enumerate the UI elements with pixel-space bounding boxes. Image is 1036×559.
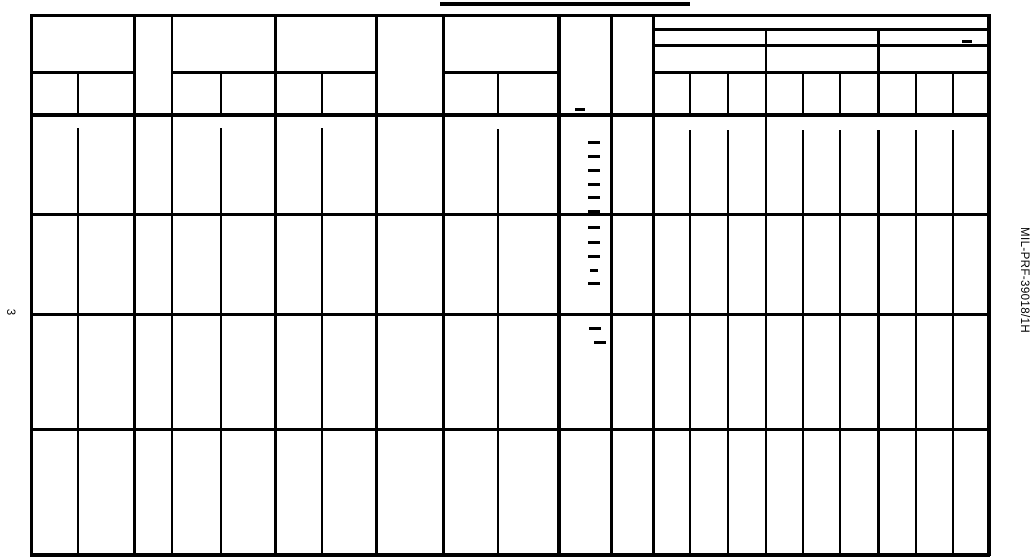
grid-line-v <box>77 71 79 117</box>
grid-line-h <box>30 71 136 74</box>
dash-mark <box>962 40 972 43</box>
grid-line-v <box>915 72 917 117</box>
grid-line-v <box>915 130 917 556</box>
grid-line-v <box>171 14 173 556</box>
dash-mark <box>588 282 600 285</box>
grid-line-v <box>497 71 499 117</box>
grid-line-v <box>689 72 691 117</box>
grid-line-v <box>375 14 378 556</box>
dash-mark <box>588 141 600 144</box>
dash-mark <box>588 169 600 172</box>
grid-line-v <box>220 71 222 117</box>
grid-line-v <box>442 14 445 556</box>
grid-line-v <box>652 14 655 556</box>
grid-line-v <box>987 14 991 556</box>
dash-mark <box>588 210 600 213</box>
dash-mark <box>575 108 585 111</box>
grid-line-h <box>30 113 990 117</box>
dash-mark <box>589 327 601 330</box>
grid-line-v <box>274 14 277 556</box>
grid-line-h <box>30 313 990 316</box>
grid-line-v <box>765 28 767 556</box>
grid-line-h <box>652 28 990 31</box>
grid-line-v <box>321 71 323 117</box>
grid-line-h <box>30 213 990 216</box>
grid-line-v <box>30 14 33 556</box>
grid-line-v <box>877 130 880 556</box>
table-title-underline <box>440 2 690 6</box>
grid-line-h <box>30 14 990 17</box>
dash-mark <box>588 241 600 244</box>
grid-line-h <box>30 553 990 557</box>
dash-mark <box>594 341 606 344</box>
grid-line-v <box>727 72 729 117</box>
dash-mark <box>590 269 598 272</box>
grid-line-v <box>77 128 79 556</box>
grid-line-v <box>220 128 222 556</box>
page-number: 3 <box>0 302 16 322</box>
grid-line-h <box>652 44 990 47</box>
dash-mark <box>588 226 600 229</box>
spec-number-vertical: MIL-PRF-39018/1H <box>1018 227 1030 359</box>
dash-mark <box>588 183 600 186</box>
grid-line-h <box>30 428 990 431</box>
grid-line-v <box>557 14 561 556</box>
grid-line-v <box>133 14 136 556</box>
grid-line-v <box>802 130 804 556</box>
grid-line-v <box>689 130 691 556</box>
grid-line-h <box>442 71 560 74</box>
grid-line-v <box>497 129 499 556</box>
dash-mark <box>588 255 600 258</box>
grid-line-v <box>727 130 729 556</box>
grid-line-v <box>839 130 841 556</box>
grid-line-v <box>952 72 954 117</box>
grid-line-v <box>952 130 954 556</box>
dash-mark <box>588 196 600 199</box>
grid-line-v <box>321 128 323 556</box>
grid-line-v <box>610 14 613 556</box>
grid-line-v <box>839 72 841 117</box>
scanned-table-page: 3 MIL-PRF-39018/1H <box>0 0 1036 559</box>
grid-line-h <box>171 71 378 74</box>
dash-mark <box>588 155 600 158</box>
grid-line-v <box>802 72 804 117</box>
grid-line-h <box>652 71 990 74</box>
